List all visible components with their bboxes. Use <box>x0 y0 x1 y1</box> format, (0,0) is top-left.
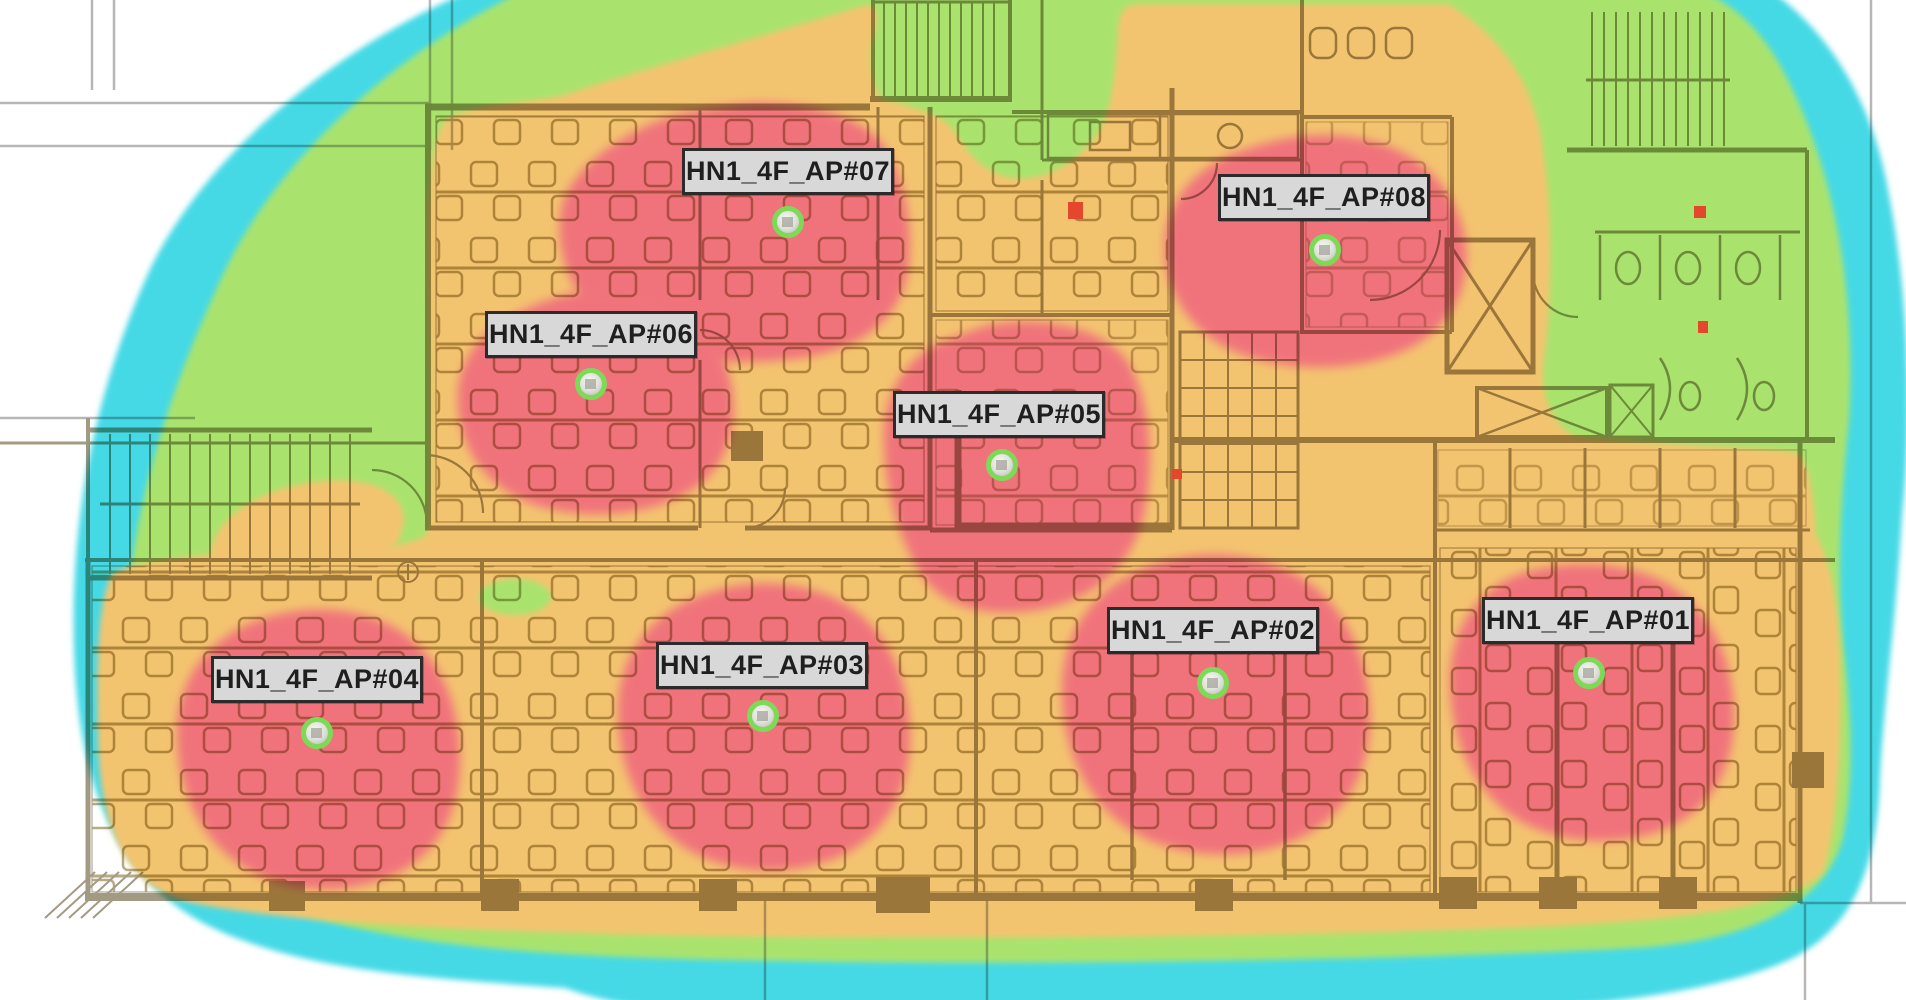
ap-icon <box>1573 657 1605 689</box>
wifi-heatmap-floorplan: HN1_4F_AP#07 HN1_4F_AP#08 HN1_4F_AP#06 H… <box>0 0 1906 1000</box>
ap-icon <box>575 368 607 400</box>
ap-label: HN1_4F_AP#06 <box>485 311 697 358</box>
ap-icon <box>1197 667 1229 699</box>
ap-label: HN1_4F_AP#02 <box>1107 607 1319 654</box>
ap-icon <box>772 206 804 238</box>
ap-label: HN1_4F_AP#01 <box>1482 597 1694 644</box>
ap-icon <box>986 449 1018 481</box>
ap-label: HN1_4F_AP#08 <box>1218 174 1430 221</box>
ap-label: HN1_4F_AP#04 <box>211 656 423 703</box>
heatmap-canvas <box>0 0 1906 1000</box>
ap-label: HN1_4F_AP#07 <box>682 148 894 195</box>
ap-label: HN1_4F_AP#05 <box>893 391 1105 438</box>
ap-icon <box>301 717 333 749</box>
ap-label: HN1_4F_AP#03 <box>656 642 868 689</box>
ap-icon <box>747 700 779 732</box>
ap-icon <box>1309 234 1341 266</box>
